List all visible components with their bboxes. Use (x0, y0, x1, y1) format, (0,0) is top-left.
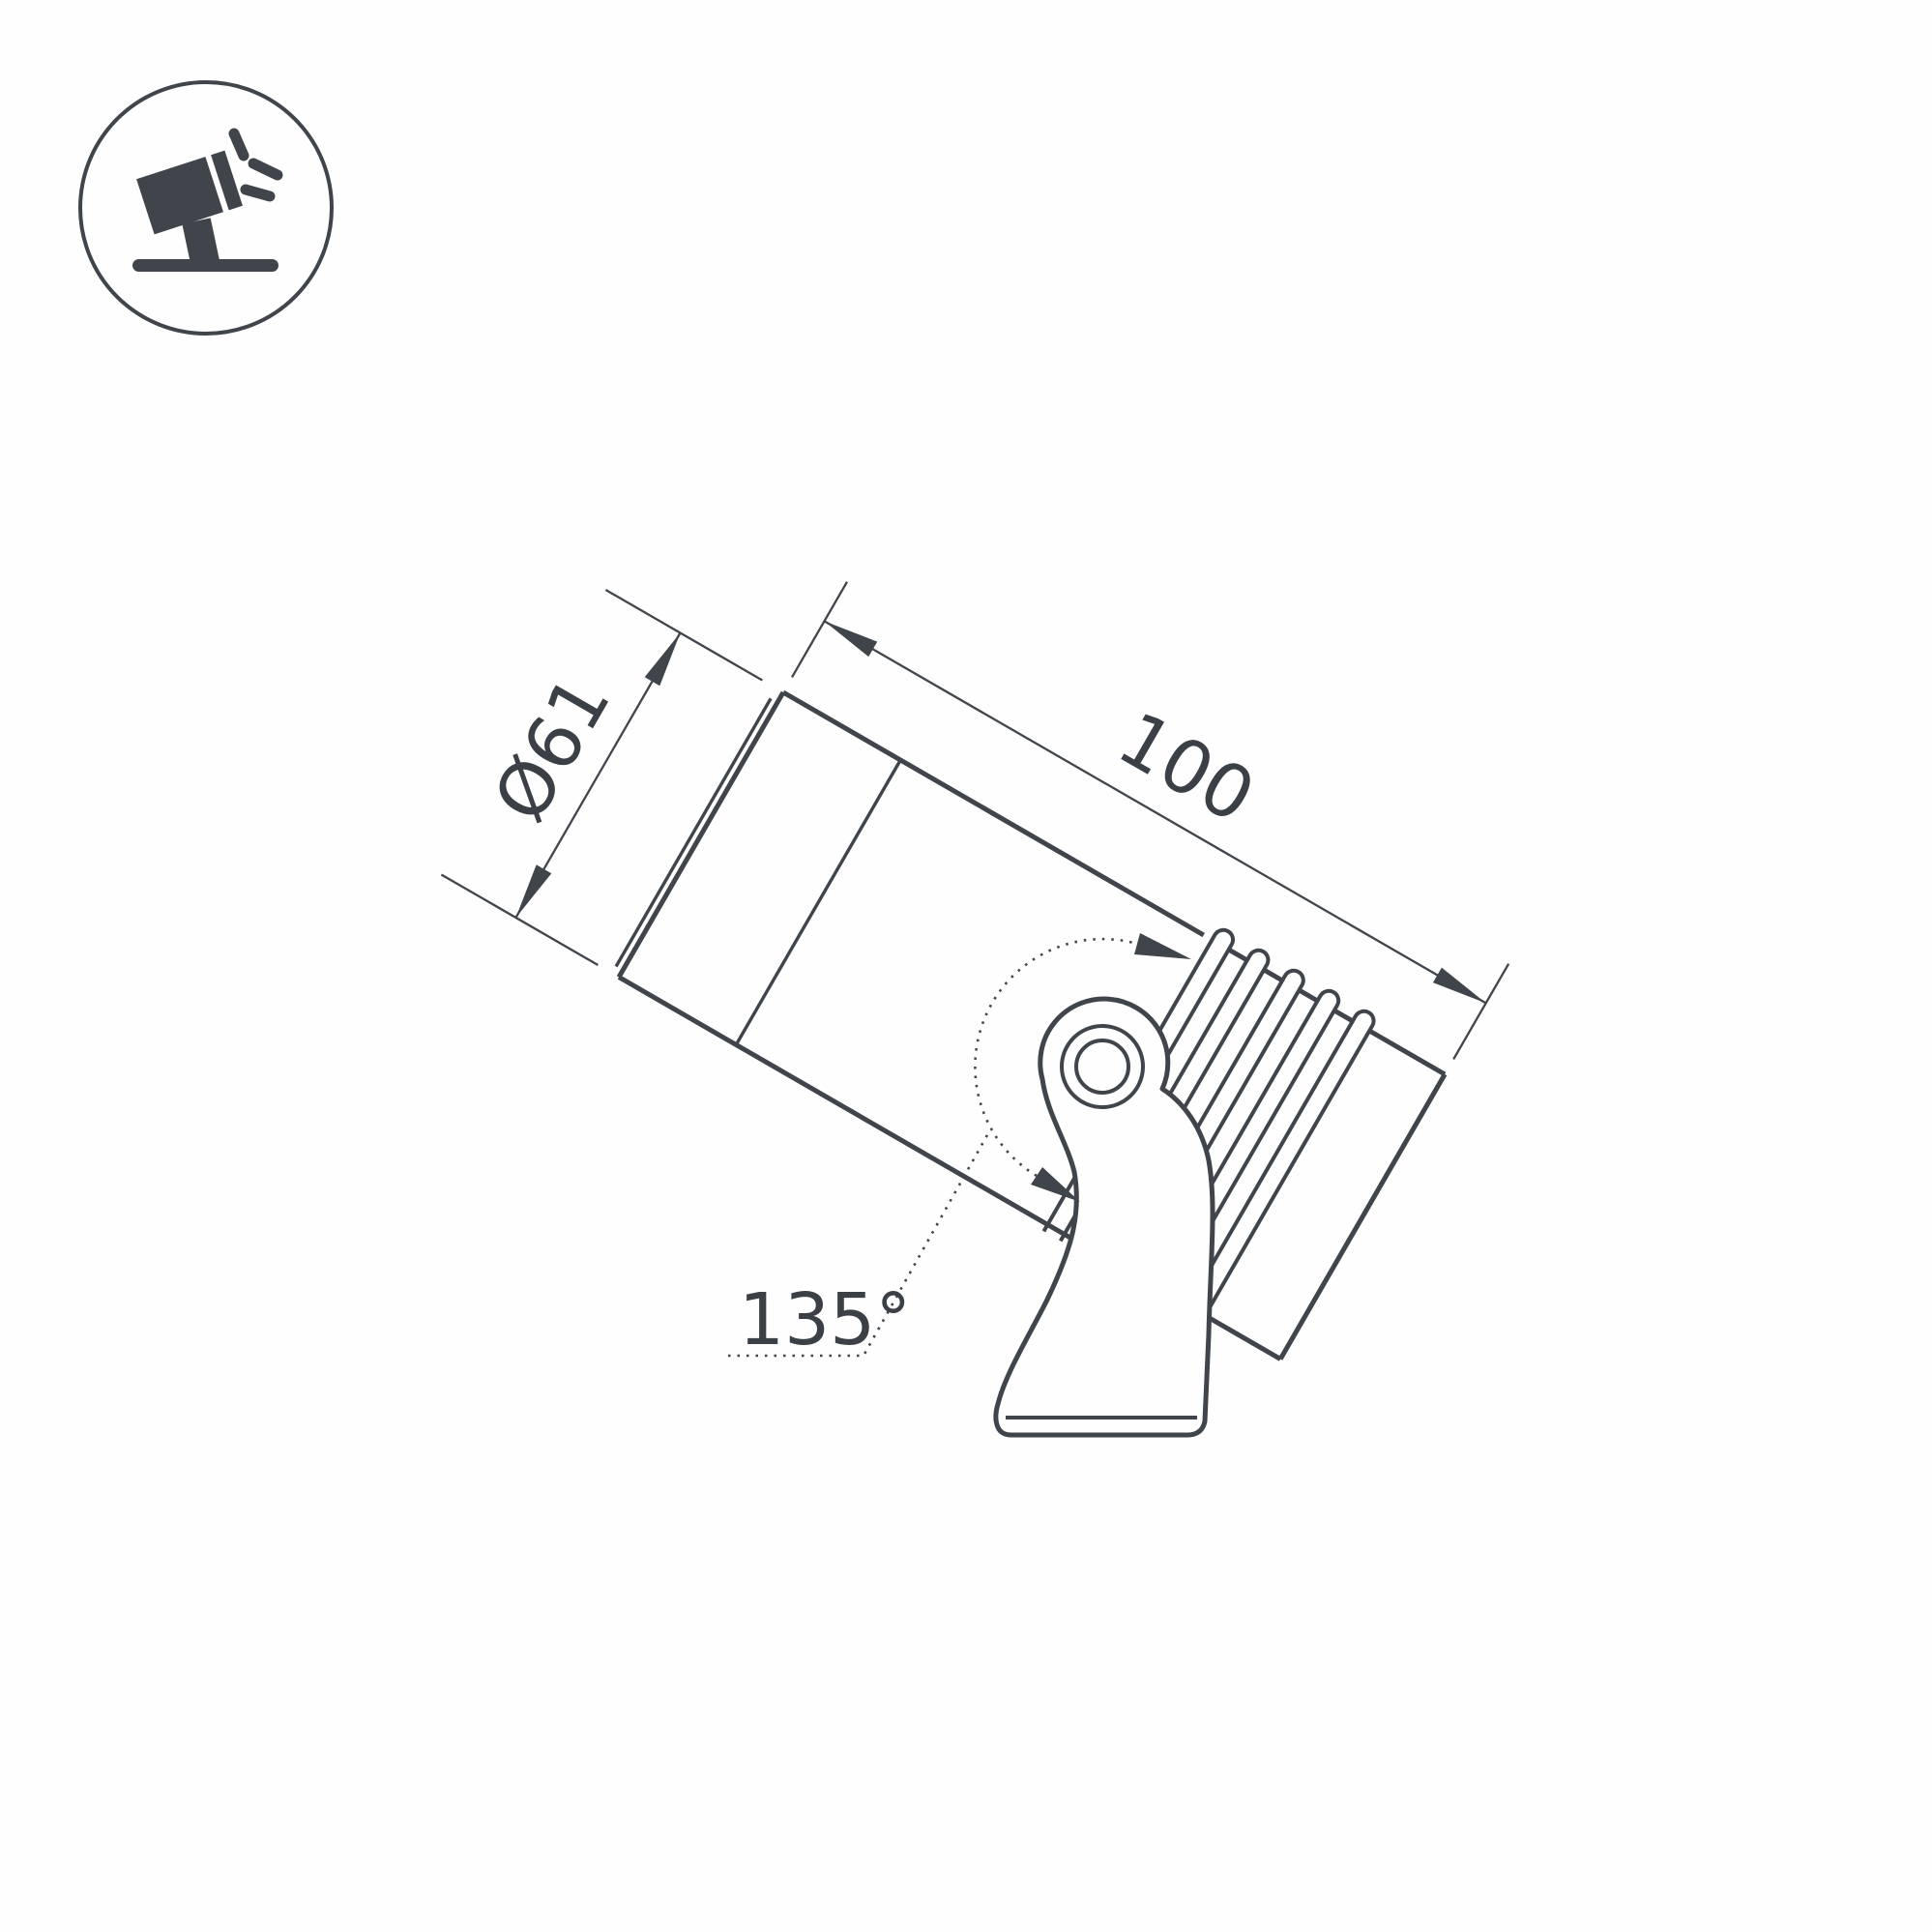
length-dimension: 100 (792, 537, 1535, 1059)
rotation-angle-label: 135° (739, 1278, 911, 1361)
diameter-dimension: Ø61 (432, 585, 762, 965)
mounting-bracket (996, 999, 1213, 1435)
lamp-rear-face (1280, 1074, 1445, 1359)
lamp-front-face (619, 692, 783, 977)
product-drawing-page: 100 Ø61 (0, 0, 1932, 1932)
lens-lip-line (616, 698, 771, 966)
rotation-arc-arrow-top (1134, 933, 1191, 959)
length-label: 100 (1104, 695, 1269, 840)
technical-drawing: 100 Ø61 (0, 0, 1932, 1932)
bracket-arm (996, 999, 1213, 1435)
diameter-label: Ø61 (477, 661, 627, 835)
lamp-body: 100 Ø61 (428, 428, 1535, 1365)
spotlight-icon (80, 82, 332, 334)
icon-ground-bar (132, 259, 278, 272)
rear-cap-top-edge (1369, 1031, 1445, 1074)
lamp-section-divider (737, 762, 899, 1043)
icon-light-rays (234, 133, 278, 196)
